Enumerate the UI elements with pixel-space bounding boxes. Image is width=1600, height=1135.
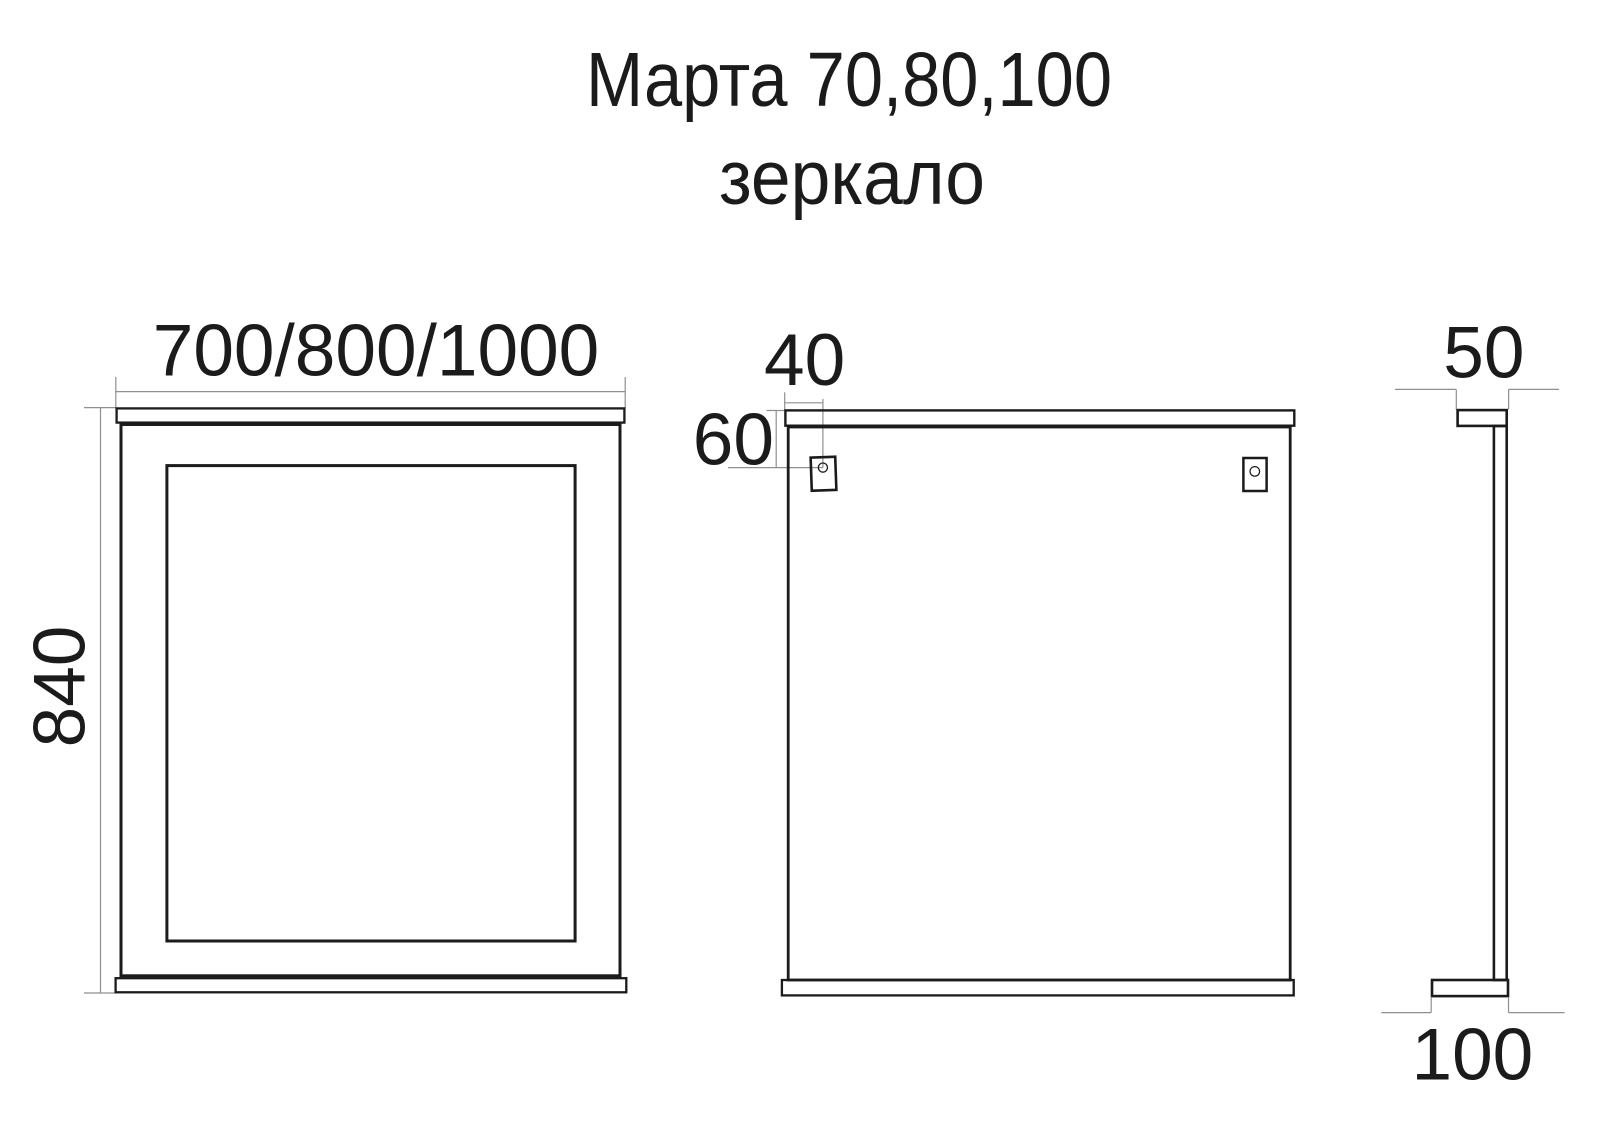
svg-text:100: 100 <box>1411 1015 1533 1096</box>
svg-text:700/800/1000: 700/800/1000 <box>153 311 600 392</box>
svg-text:40: 40 <box>764 320 845 401</box>
svg-text:840: 840 <box>20 626 101 748</box>
svg-text:Марта 70,80,100: Марта 70,80,100 <box>586 37 1112 123</box>
svg-text:60: 60 <box>693 400 774 481</box>
svg-text:50: 50 <box>1443 312 1524 393</box>
svg-text:зеркало: зеркало <box>719 135 985 221</box>
